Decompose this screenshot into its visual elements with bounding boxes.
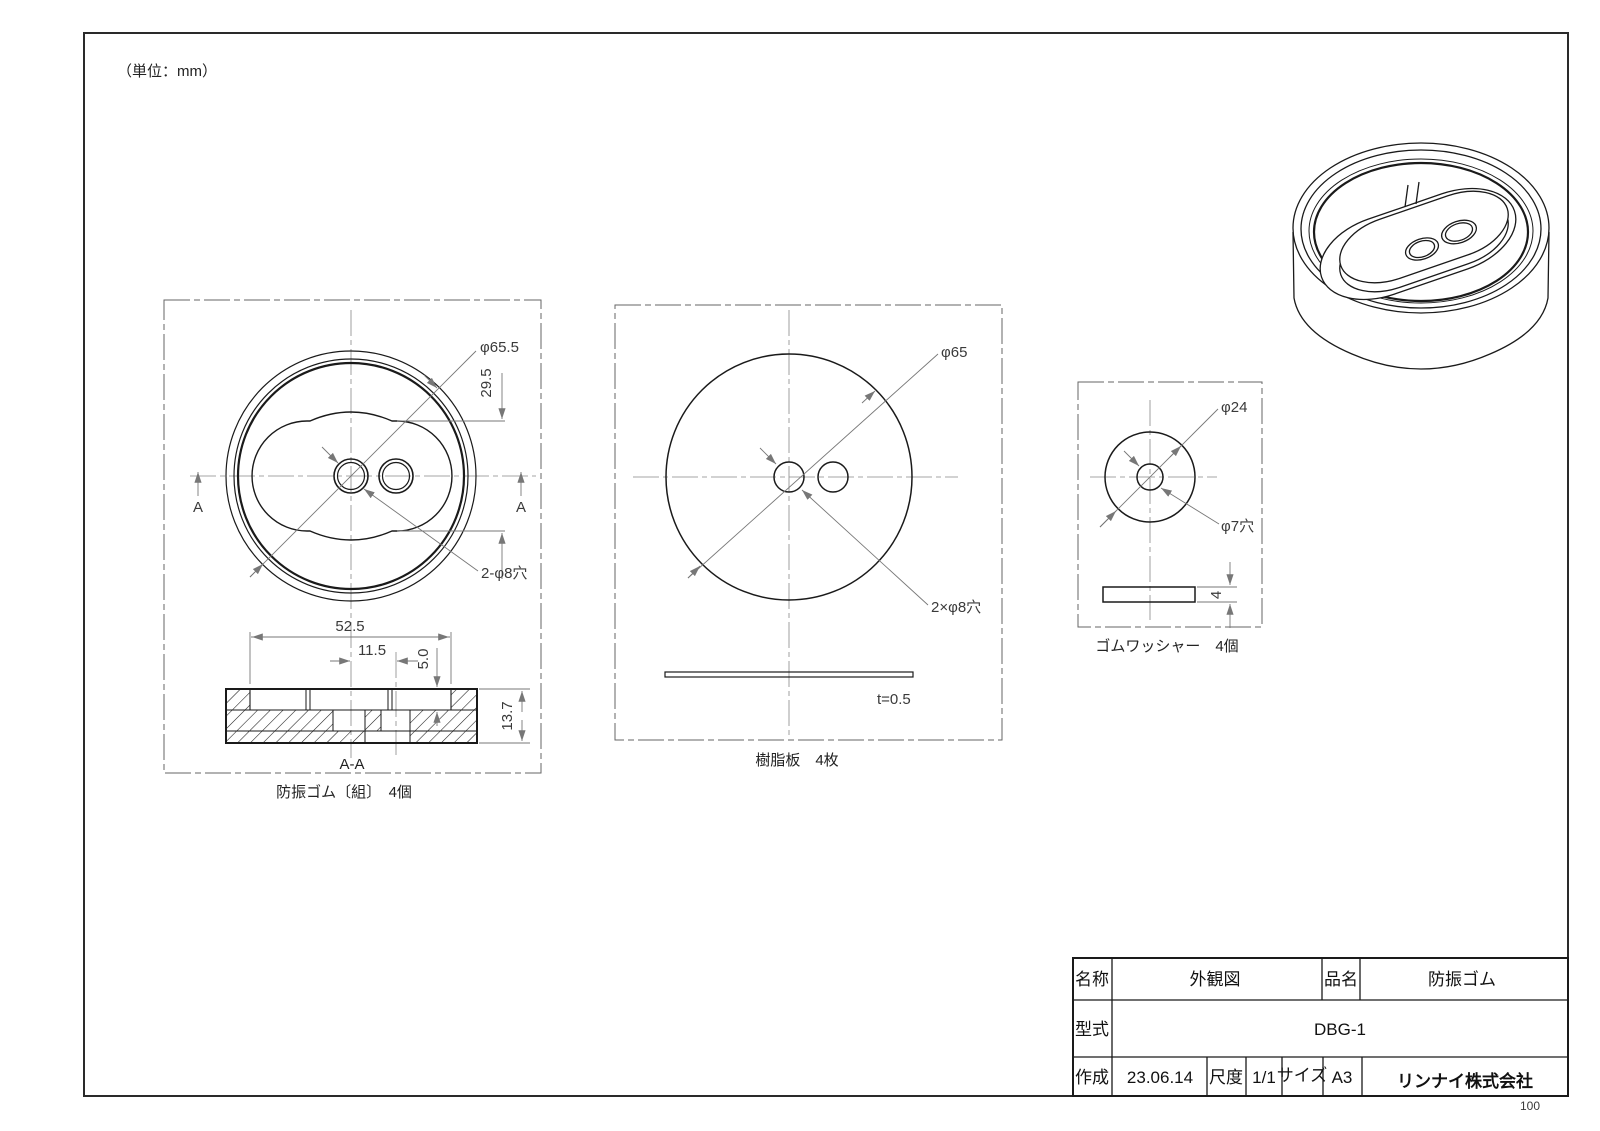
drawing-canvas: （単位：mm） φ65.5 29.5 2-φ8穴 <box>0 0 1600 1131</box>
dim-thickness: t=0.5 <box>877 691 911 708</box>
created-label: 作成 <box>1075 1068 1109 1087</box>
page-number: 100 <box>1520 1099 1540 1113</box>
size-label: サイズ <box>1277 1066 1328 1085</box>
scale-label: 尺度 <box>1209 1068 1243 1087</box>
isometric-view <box>1293 143 1549 369</box>
hatch-band3-right <box>410 731 477 743</box>
dim-outer-dia: φ65 <box>941 344 967 361</box>
holes-leader <box>802 490 928 605</box>
dia24-arrow-ur <box>1170 446 1181 457</box>
hatch-band3-left <box>226 731 365 743</box>
holes-arrow-ul <box>322 447 338 463</box>
dia24-leader <box>1100 409 1218 527</box>
dia65-arrow-ll <box>688 566 700 578</box>
assembly-section-view: 52.5 11.5 5.0 13.7 A-A 防振ゴム〔組〕 4個 <box>226 618 530 801</box>
name-label: 名称 <box>1075 970 1109 989</box>
hatch-band2-left <box>226 710 333 731</box>
section-label: A-A <box>339 756 364 773</box>
name-value: 外観図 <box>1190 970 1241 989</box>
dia65-arrow-ur <box>862 391 875 403</box>
company-name: リンナイ株式会社 <box>1397 1071 1533 1091</box>
product-value: 防振ゴム <box>1428 969 1496 989</box>
washer-side-view <box>1103 587 1195 602</box>
washer-caption: ゴムワッシャー 4個 <box>1095 637 1238 655</box>
section-label-left: A <box>193 499 203 516</box>
title-block: 名称 外観図 品名 防振ゴム 型式 DBG-1 作成 23.06.14 尺度 1… <box>1073 958 1568 1096</box>
resin-plate-caption: 樹脂板 4枚 <box>755 751 838 769</box>
assembly-front-view: φ65.5 29.5 2-φ8穴 A A <box>164 300 541 773</box>
hatch-right-wall <box>451 689 477 710</box>
resin-plate-view: φ65 2×φ8穴 t=0.5 樹脂板 4枚 <box>615 305 1002 769</box>
created-value: 23.06.14 <box>1127 1068 1193 1087</box>
hatch-left-wall <box>226 689 250 710</box>
unit-note: （単位：mm） <box>117 63 217 80</box>
product-label: 品名 <box>1324 970 1358 989</box>
section-label-right: A <box>516 499 526 516</box>
hole-arrow-ul <box>1124 451 1139 466</box>
dia655-arrow-ll <box>250 564 263 577</box>
dim-outer-dia: φ65.5 <box>480 339 519 356</box>
resin-plate-phantom-frame <box>615 305 1002 740</box>
dim-hole: φ7穴 <box>1221 518 1254 535</box>
drawing-sheet: （単位：mm） φ65.5 29.5 2-φ8穴 <box>0 0 1600 1131</box>
dim-hole-pitch: 11.5 <box>358 642 386 659</box>
dim-holes: 2-φ8穴 <box>481 565 527 582</box>
size-value: A3 <box>1332 1068 1353 1087</box>
dim-holes: 2×φ8穴 <box>931 599 981 616</box>
holes-arrow-ul <box>760 448 776 464</box>
hatch-band2-right <box>410 710 477 731</box>
dim-recess-depth: 5.0 <box>415 649 432 670</box>
washer-phantom-frame <box>1078 382 1262 627</box>
dia24-arrow-ll <box>1100 511 1116 527</box>
scale-value: 1/1 <box>1252 1068 1276 1087</box>
dim-recess-width: 52.5 <box>335 618 364 635</box>
dim-outer-dia: φ24 <box>1221 399 1247 416</box>
dim-total-height: 13.7 <box>499 701 516 730</box>
dim-boss-height: 29.5 <box>478 368 495 397</box>
assembly-caption: 防振ゴム〔組〕 4個 <box>276 783 412 801</box>
dim-thickness: 4 <box>1208 591 1225 599</box>
model-value: DBG-1 <box>1314 1020 1366 1039</box>
dia65-leader <box>688 354 938 578</box>
rubber-washer-view: φ24 φ7穴 4 ゴムワッシャー 4個 <box>1078 382 1262 655</box>
model-label: 型式 <box>1075 1020 1109 1039</box>
hatch-band2-sliver <box>365 710 381 731</box>
hole-leader <box>1161 488 1219 524</box>
